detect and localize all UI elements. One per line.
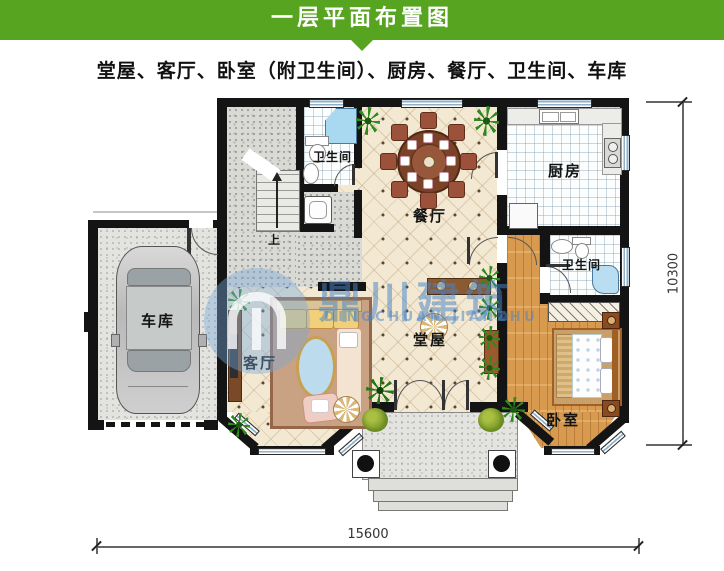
porch-column-left bbox=[357, 455, 374, 472]
bath1-door-leaf bbox=[352, 164, 355, 185]
dim-right-line bbox=[682, 102, 684, 446]
entry-door-leaf-3 bbox=[466, 380, 469, 410]
wall-bath2-left-a bbox=[540, 235, 550, 267]
garage-pier bbox=[84, 312, 93, 332]
wall-garage-bottom-left bbox=[88, 420, 104, 430]
dining-chair-1 bbox=[460, 153, 477, 170]
stairs-arrow-line bbox=[276, 180, 278, 228]
car-hood-line bbox=[128, 386, 188, 387]
tv bbox=[230, 334, 238, 378]
wall-garage-bottom-right bbox=[204, 420, 218, 430]
kitchen-door-leaf bbox=[495, 152, 498, 178]
console-vase bbox=[436, 281, 446, 291]
plant-living-bottom bbox=[228, 413, 250, 437]
garage-door-dashed bbox=[106, 422, 204, 427]
dining-teapot bbox=[423, 156, 435, 168]
car-windshield bbox=[127, 350, 191, 372]
washing-machine bbox=[304, 196, 332, 224]
sofa-cushion-1 bbox=[279, 309, 307, 329]
dining-chair-7 bbox=[420, 112, 437, 129]
plant-bedroom bbox=[502, 397, 525, 422]
dining-chair-4 bbox=[391, 181, 408, 198]
sink-1 bbox=[303, 163, 319, 184]
label-garage: 车库 bbox=[141, 310, 175, 331]
bed bbox=[552, 328, 622, 406]
label-bedroom: 卧室 bbox=[546, 409, 580, 430]
wall-bath1-bottom bbox=[296, 184, 338, 192]
wall-garage-top bbox=[93, 220, 189, 228]
window-bath1-top bbox=[309, 99, 344, 108]
label-living: 客厅 bbox=[243, 352, 277, 373]
porch-column-right bbox=[493, 455, 510, 472]
dim-bottom-line bbox=[96, 546, 639, 548]
dim-right-value: 10300 bbox=[667, 234, 682, 314]
label-dining: 餐厅 bbox=[413, 205, 447, 226]
window-kitchen-right bbox=[621, 135, 630, 171]
window-bedroom-bay-bottom bbox=[551, 448, 595, 455]
bed-mattress bbox=[572, 334, 602, 398]
plant-dining-right bbox=[474, 106, 499, 136]
tree-entry bbox=[366, 377, 394, 404]
dim-right-ext-bottom bbox=[646, 444, 692, 446]
car-mirror-right bbox=[198, 334, 207, 347]
window-living-bay-bottom bbox=[258, 448, 326, 455]
floor-plan: 上 bbox=[0, 90, 724, 571]
bush-porch-right bbox=[478, 408, 504, 432]
window-dining-top bbox=[401, 99, 463, 108]
wall-dining-west-b bbox=[354, 190, 362, 238]
nightstand-1 bbox=[602, 312, 620, 329]
dining-chair-2 bbox=[448, 181, 465, 198]
stairs-arrow-head bbox=[272, 172, 282, 181]
nightstand-2 bbox=[602, 400, 620, 417]
dim-bottom-value: 15600 bbox=[320, 527, 416, 542]
label-bath2: 卫生间 bbox=[562, 256, 601, 273]
coffee-table bbox=[296, 336, 336, 398]
entry-door-leaf-2 bbox=[442, 380, 445, 410]
plant-hall-2 bbox=[479, 296, 500, 320]
label-kitchen: 厨房 bbox=[548, 160, 582, 181]
dining-chair-6 bbox=[391, 124, 408, 141]
plant-hall-3 bbox=[479, 326, 500, 350]
plant-hall-1 bbox=[479, 266, 500, 290]
label-hall: 堂屋 bbox=[413, 329, 447, 350]
sofa-cushion-3 bbox=[333, 309, 359, 329]
side-rosette-living bbox=[333, 396, 360, 423]
console-vase-2 bbox=[468, 281, 478, 291]
car-rear-window bbox=[127, 268, 191, 286]
wall-laundry-stub bbox=[296, 224, 334, 232]
car-mirror-left bbox=[111, 334, 120, 347]
plant-hall-4 bbox=[479, 356, 500, 380]
window-bath2-right bbox=[621, 247, 630, 287]
chaise-pillow bbox=[339, 332, 358, 348]
porch-step-3 bbox=[378, 501, 508, 511]
bed-headboard bbox=[612, 330, 618, 400]
window-kitchen-top bbox=[537, 99, 592, 108]
armchair-pillow bbox=[311, 399, 329, 413]
wall-garage-top-stub bbox=[213, 220, 219, 228]
sink-2 bbox=[551, 239, 573, 254]
bush-porch-left bbox=[362, 408, 388, 432]
wall-left bbox=[217, 98, 227, 420]
plant-dining-left bbox=[356, 107, 380, 135]
label-bath1: 卫生间 bbox=[313, 148, 352, 165]
fridge bbox=[509, 203, 538, 229]
label-stairs-up: 上 bbox=[268, 231, 281, 248]
plant-living-top bbox=[228, 289, 250, 313]
dining-chair-5 bbox=[380, 153, 397, 170]
stove bbox=[604, 138, 621, 168]
kitchen-sink bbox=[539, 109, 579, 124]
wall-foyer-south-stub bbox=[318, 282, 366, 291]
sofa-cushion-2 bbox=[306, 309, 334, 329]
dim-right-ext-top bbox=[646, 101, 692, 103]
bedroom-door-leaf-west bbox=[467, 237, 470, 264]
entry-door-leaf-1 bbox=[394, 380, 397, 410]
garage-eave-line bbox=[93, 211, 217, 213]
dining-chair-8 bbox=[448, 124, 465, 141]
